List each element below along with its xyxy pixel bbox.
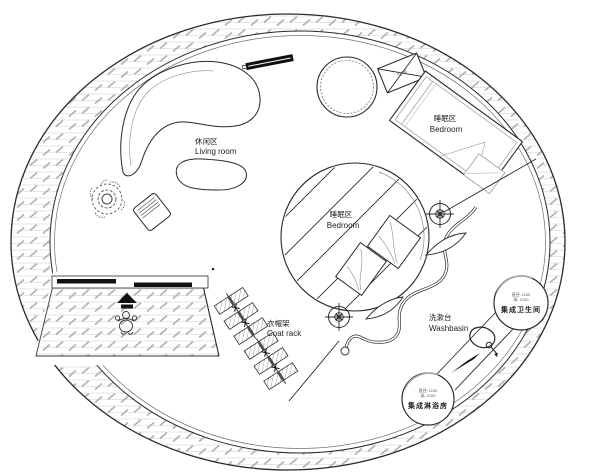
shower-pod-label: 集成淋浴房	[407, 401, 448, 410]
armchair	[132, 192, 171, 231]
entrance-sliding-door	[52, 276, 208, 288]
vine-curl	[341, 347, 349, 355]
bathroom-spec-height: 高: 2100	[513, 296, 529, 302]
coat-rack	[242, 329, 300, 393]
floor-plan-canvas: 空调	[0, 0, 611, 473]
label-washbasin-en: Washbasin	[429, 324, 468, 333]
door-leaf	[134, 283, 192, 288]
coffee-table	[176, 159, 246, 190]
washbasin-symbol	[470, 327, 498, 357]
label-coat-rack-en: Coat rack	[267, 329, 302, 338]
round-table	[317, 57, 377, 117]
column-symbol	[426, 200, 454, 228]
shower-spec-height: 高: 2100	[420, 392, 436, 398]
tv-unit	[242, 55, 293, 71]
label-bedroom-center-zh: 睡眠区	[330, 210, 353, 219]
plant	[90, 180, 124, 218]
label-bedroom-center-en: Bedroom	[327, 221, 360, 230]
label-living-room-zh: 休闲区	[195, 136, 218, 146]
shower-pod: 直径: 1100 高: 2100 集成淋浴房	[402, 373, 454, 425]
bathroom-pod: 直径: 1100 高: 2100 集成卫生间	[494, 276, 548, 330]
direction-arrow	[451, 353, 480, 373]
label-washbasin-zh: 洗漱台	[429, 312, 452, 322]
plan-dot-mark	[212, 268, 214, 270]
bathroom-pod-label: 集成卫生间	[500, 305, 541, 314]
label-bedroom-upper-en: Bedroom	[430, 125, 463, 134]
label-bedroom-upper-zh: 睡眠区	[434, 114, 457, 123]
label-living-room-en: Living room	[195, 147, 237, 156]
label-coat-rack-zh: 衣帽架	[267, 318, 290, 328]
door-leaf	[57, 279, 116, 284]
floor-plan: 空调	[0, 0, 611, 473]
round-bed	[248, 122, 452, 344]
